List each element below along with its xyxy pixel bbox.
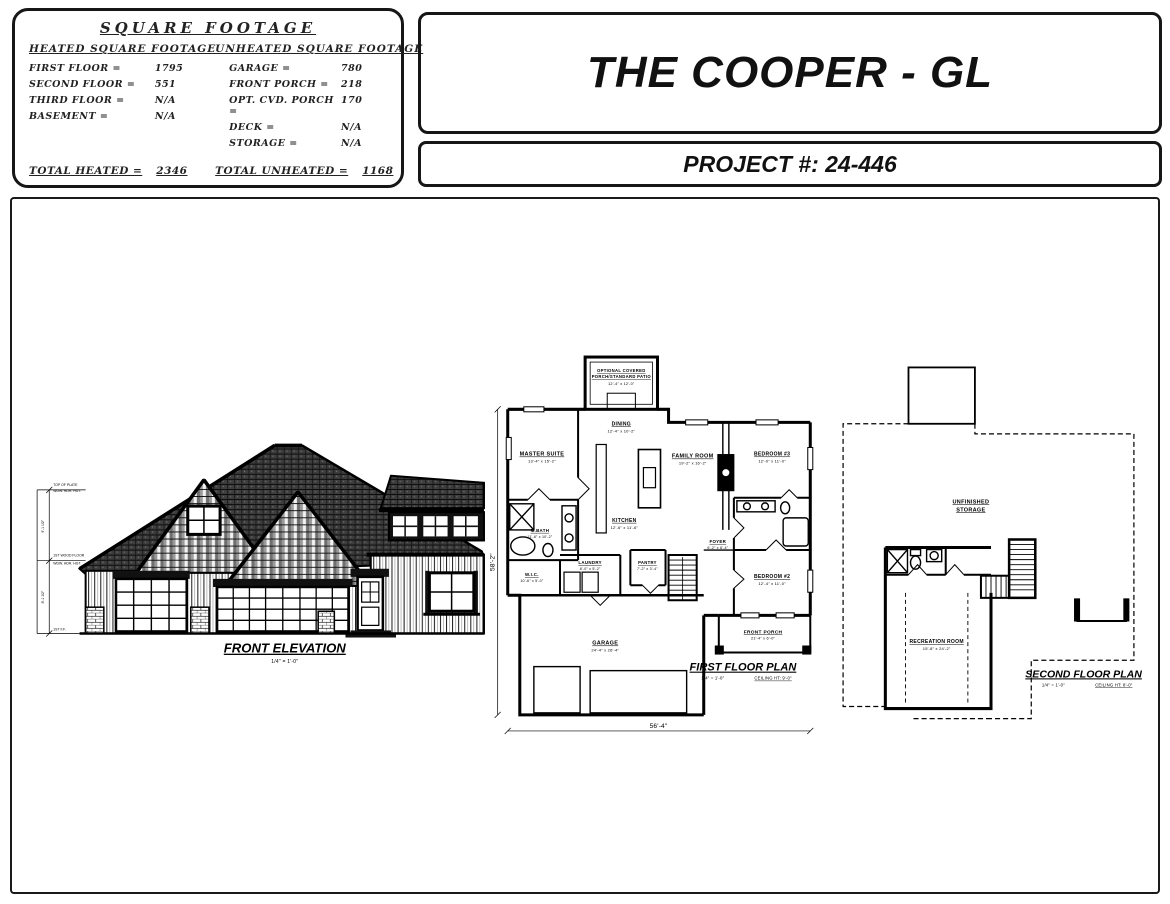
elevation-annotation: TOP OF PLATE xyxy=(53,483,78,487)
svg-text:13'-4" x 15'-2": 13'-4" x 15'-2" xyxy=(528,459,556,464)
svg-text:12'-4" x 12'-0": 12'-4" x 12'-0" xyxy=(608,382,635,386)
room-label-garage: GARAGE xyxy=(592,641,618,647)
svg-text:15'-8" x 24'-2": 15'-8" x 24'-2" xyxy=(923,646,951,651)
svg-text:7'-2" x 3'-4": 7'-2" x 3'-4" xyxy=(637,567,658,571)
plan-width-dimension: 56'-4" xyxy=(650,723,668,730)
room-label-pantry: PANTRY xyxy=(638,560,657,565)
table-row: STORAGE = N/A xyxy=(215,138,387,149)
project-number-block: PROJECT #: 24-446 xyxy=(418,141,1162,187)
svg-text:12'-4" x 10'-2": 12'-4" x 10'-2" xyxy=(607,428,635,433)
front-elevation-drawing: TOP OF PLATE WDW. HDR. HGT. 1ST WOOD FLO… xyxy=(27,419,487,669)
room-label-bedroom-3: BEDROOM #3 xyxy=(754,452,790,458)
table-row: SECOND FLOOR = 551 xyxy=(29,79,201,90)
rec-room-walls xyxy=(885,548,991,709)
table-row: THIRD FLOOR = N/A xyxy=(29,95,201,106)
svg-text:21'-4" x 6'-0": 21'-4" x 6'-0" xyxy=(751,636,776,640)
room-label-kitchen: KITCHEN xyxy=(612,518,636,524)
dormer-window xyxy=(454,516,478,536)
room-label-foyer: FOYER xyxy=(709,539,726,544)
svg-text:8'-0" x 5'-2": 8'-0" x 5'-2" xyxy=(580,567,601,571)
unheated-column-title: UNHEATED SQUARE FOOTAGE xyxy=(215,43,387,55)
table-row: GARAGE = 780 xyxy=(215,63,387,74)
garage-door-pads xyxy=(534,667,687,713)
unheated-column: UNHEATED SQUARE FOOTAGE GARAGE = 780 FRO… xyxy=(215,43,387,177)
elevation-height-dim: 8'-1 1/2" xyxy=(41,590,45,603)
brick-pier xyxy=(86,607,104,633)
svg-text:STORAGE: STORAGE xyxy=(956,507,985,513)
second-floor-ceiling-height: CEILING HT: 8'-0" xyxy=(1095,682,1133,687)
elevation-annotation: WDW. HDR. HGT. xyxy=(53,562,81,566)
elevation-annotation: 1ST WOOD FLOOR xyxy=(53,554,84,558)
table-row: OPT. CVD. PORCH = 170 xyxy=(215,95,387,117)
svg-text:11'-6" x 10'-2": 11'-6" x 10'-2" xyxy=(527,535,552,539)
table-row: DECK = N/A xyxy=(215,122,387,133)
dormer xyxy=(379,476,484,541)
second-floor-plan-drawing: UNFINISHED STORAGE RECREATION ROOM 15'-8… xyxy=(830,351,1150,729)
second-floor-plan-scale: 1/4" = 1'-0" xyxy=(1042,682,1065,687)
dormer-window xyxy=(393,516,417,536)
room-label-recreation-room: RECREATION ROOM xyxy=(910,639,964,645)
first-floor-ceiling-height: CEILING HT: 9'-0" xyxy=(754,676,792,681)
room-label-wic: W.I.C. xyxy=(525,572,539,577)
square-footage-box: SQUARE FOOTAGE HEATED SQUARE FOOTAGE FIR… xyxy=(12,8,404,188)
stairs xyxy=(669,557,697,600)
upstairs-bath-fixtures xyxy=(887,550,941,573)
roof-bump-outline xyxy=(908,367,974,423)
laundry-fixtures xyxy=(564,572,598,592)
table-row: FIRST FLOOR = 1795 xyxy=(29,63,201,74)
project-number: PROJECT #: 24-446 xyxy=(683,151,896,178)
svg-text:12'-4" x 11'-0": 12'-4" x 11'-0" xyxy=(758,581,786,586)
room-label-mbath: M.BATH xyxy=(531,528,550,533)
table-row: FRONT PORCH = 218 xyxy=(215,79,387,90)
svg-text:19'-2" x 16'-2": 19'-2" x 16'-2" xyxy=(679,461,707,466)
svg-text:6'-2" x 8'-4": 6'-2" x 8'-4" xyxy=(707,546,728,550)
attic-access xyxy=(1075,599,1129,621)
room-label-optional-porch: OPTIONAL COVERED xyxy=(597,368,646,373)
elevation-annotation: 1ST F.F. xyxy=(53,627,66,631)
dormer-window xyxy=(423,516,447,536)
elevation-height-dim: 9'-1 1/2" xyxy=(41,519,45,532)
room-label-laundry: LAUNDRY xyxy=(578,560,602,565)
front-elevation-scale: 1/4" = 1'-0" xyxy=(271,659,298,665)
svg-text:PORCH/STANDARD PATIO: PORCH/STANDARD PATIO xyxy=(592,374,652,379)
room-label-bedroom-2: BEDROOM #2 xyxy=(754,574,790,580)
title-block: THE COOPER - GL xyxy=(418,12,1162,134)
total-heated: TOTAL HEATED = 2346 xyxy=(29,165,201,177)
heated-column-title: HEATED SQUARE FOOTAGE xyxy=(29,43,201,55)
bath2-fixtures xyxy=(737,501,808,546)
first-floor-plan-drawing: OPTIONAL COVERED PORCH/STANDARD PATIO 12… xyxy=(489,349,827,741)
brick-pier xyxy=(318,611,334,633)
heated-column: HEATED SQUARE FOOTAGE FIRST FLOOR = 1795… xyxy=(29,43,201,177)
svg-text:10'-6" x 5'-0": 10'-6" x 5'-0" xyxy=(520,579,544,583)
svg-text:12'-6" x 11'-6": 12'-6" x 11'-6" xyxy=(611,525,639,530)
svg-text:12'-0" x 11'-0": 12'-0" x 11'-0" xyxy=(758,459,786,464)
drawing-sheet-area: TOP OF PLATE WDW. HDR. HGT. 1ST WOOD FLO… xyxy=(10,197,1160,894)
table-row: BASEMENT = N/A xyxy=(29,111,201,122)
brick-pier xyxy=(191,607,209,633)
total-unheated: TOTAL UNHEATED = 1168 xyxy=(215,165,387,177)
right-window xyxy=(423,571,480,614)
room-label-master-suite: MASTER SUITE xyxy=(520,452,565,458)
room-label-dining: DINING xyxy=(612,421,631,427)
single-garage-door xyxy=(113,571,190,632)
svg-text:24'-4" x 26'-4": 24'-4" x 26'-4" xyxy=(591,648,619,653)
front-elevation-label: FRONT ELEVATION xyxy=(224,641,347,656)
plan-height-dimension: 58'-2" xyxy=(490,553,497,571)
square-footage-title: SQUARE FOOTAGE xyxy=(29,19,387,37)
room-label-unfinished-storage: UNFINISHED xyxy=(953,499,990,505)
elevation-annotation: WDW. HDR. HGT. xyxy=(53,489,81,493)
room-label-front-porch: FRONT PORCH xyxy=(744,629,783,635)
room-label-family-room: FAMILY ROOM xyxy=(672,454,714,460)
second-floor-plan-label: SECOND FLOOR PLAN xyxy=(1025,668,1142,680)
patio-step xyxy=(607,393,635,409)
first-floor-plan-scale: 1/4" = 1'-0" xyxy=(701,676,724,681)
plan-title: THE COOPER - GL xyxy=(587,48,993,98)
first-floor-plan-label: FIRST FLOOR PLAN xyxy=(690,662,798,674)
